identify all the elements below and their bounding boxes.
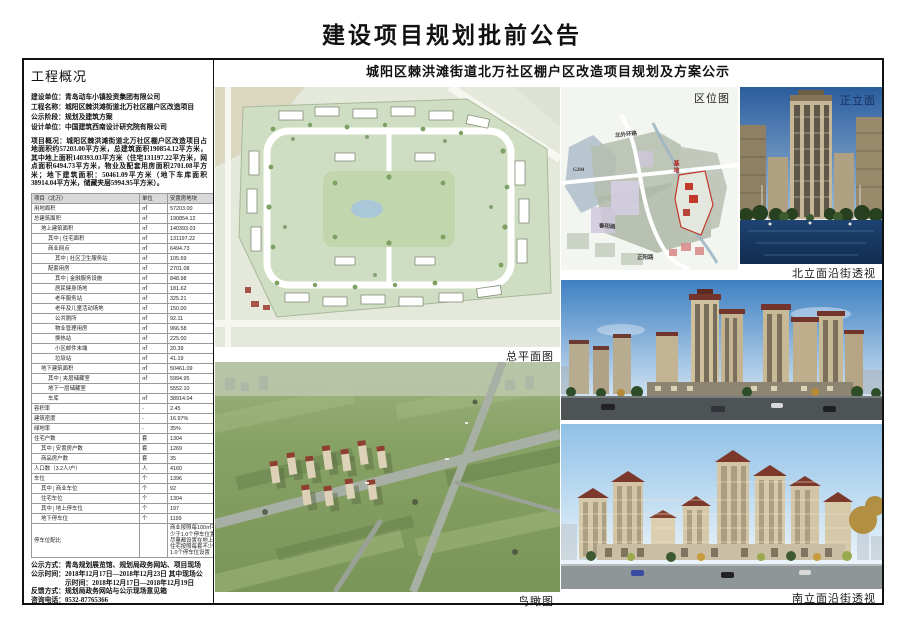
south-perspective-caption: 南立面沿街透视 [561, 590, 876, 606]
project-info-list: 建设单位：青岛动车小镇投资集团有限公司工程名称：城阳区棘洪滩街道北万社区棚户区改… [31, 93, 207, 133]
south-perspective-image [561, 424, 882, 589]
plan-subtitle: 城阳区棘洪滩街道北万社区棚户区改造项目规划及方案公示 [214, 60, 882, 86]
table-row: 配套用房㎡2701.08 [32, 264, 215, 274]
table-header-row: 项目（北万） 单位 安置房地块 [32, 194, 215, 204]
aerial-view-image [215, 362, 560, 592]
front-elevation-graphic [740, 87, 882, 264]
project-summary: 项目概况：城阳区棘洪滩街道北万社区棚户区改造项目占地面积约57203.00平方米… [31, 138, 207, 188]
table-row: 地下建筑面积㎡50461.09 [32, 364, 215, 374]
table-row: 其中金融服务设施㎡848.98 [32, 274, 215, 284]
road-label-zhengyang: 正阳路 [637, 253, 654, 261]
indicator-table: 项目（北万） 单位 安置房地块 用地面积㎡57203.00总建筑面积㎡19085… [31, 193, 214, 558]
col-header-value: 安置房地块 [168, 194, 215, 204]
project-overview-panel: 工程概况 建设单位：青岛动车小镇投资集团有限公司工程名称：城阳区棘洪滩街道北万社… [24, 60, 214, 603]
table-row: 换热站㎡225.00 [32, 334, 215, 344]
info-line: 咨询电话：0532-87765366 [31, 597, 207, 603]
table-row: 车位个1396 [32, 474, 215, 484]
table-row: 垃圾站㎡41.19 [32, 354, 215, 364]
table-row: 停车位配比商业按照每100㎡不少于1.0个停车位置，尽量都设置在地上，住宅按照每… [32, 524, 215, 558]
table-row: 居民健身场地㎡181.62 [32, 284, 215, 294]
location-map-image: 区位图 北外环路 G204 春阳路 正阳路 基地 [561, 87, 738, 270]
info-line: 公示方式：青岛规划展览馆、规划局政务网站、项目现场 [31, 562, 207, 571]
front-elevation-image: 正立面 [740, 87, 882, 264]
table-row: 商业网点㎡6494.73 [32, 244, 215, 254]
table-row: 商品房户数套35 [32, 454, 215, 464]
table-row: 地上建筑面积㎡140393.03 [32, 224, 215, 234]
table-row: 地下停车位个1199 [32, 514, 215, 524]
table-row: 小区邮件末端㎡20.39 [32, 344, 215, 354]
location-map-caption: 区位图 [694, 90, 730, 106]
info-line: 建设单位：青岛动车小镇投资集团有限公司 [31, 93, 207, 103]
table-row: 其中住宅面积㎡131197.22 [32, 234, 215, 244]
table-row: 其中社区卫生服务站㎡105.69 [32, 254, 215, 264]
table-row: 总建筑面积㎡190854.12 [32, 214, 215, 224]
road-label-g204: G204 [573, 168, 584, 173]
south-perspective-graphic [561, 424, 882, 589]
notice-board-frame: 工程概况 建设单位：青岛动车小镇投资集团有限公司工程名称：城阳区棘洪滩街道北万社… [22, 58, 884, 605]
table-row: 住宅车位个1304 [32, 494, 215, 504]
info-line: 设计单位：中国建筑西南设计研究院有限公司 [31, 123, 207, 133]
table-row: 物业管理用房㎡966.58 [32, 324, 215, 334]
front-elevation-caption: 正立面 [840, 92, 876, 108]
publicity-info-list: 公示方式：青岛规划展览馆、规划局政务网站、项目现场公示时间：2018年12月17… [31, 562, 207, 603]
table-row: 其中安置房户数套1269 [32, 444, 215, 454]
aerial-view-graphic [215, 362, 560, 592]
page-title: 建设项目规划批前公告 [0, 16, 904, 50]
north-perspective-image [561, 280, 882, 420]
table-row: 其中商业车位个92 [32, 484, 215, 494]
aerial-view-caption: 鸟瞰图 [215, 593, 554, 609]
north-perspective-graphic [561, 280, 882, 420]
panel-title: 工程概况 [31, 66, 207, 85]
site-label: 基地 [671, 160, 680, 174]
table-row: 地下一层储藏室5552.10 [32, 384, 215, 394]
table-row: 公共厕所㎡92.11 [32, 314, 215, 324]
site-plan-image [215, 87, 560, 347]
road-label-chunyang: 春阳路 [599, 221, 616, 230]
table-row: 车库㎡38914.04 [32, 394, 215, 404]
info-line: 公示阶段：规划及建筑方案 [31, 113, 207, 123]
site-plan-graphic [215, 87, 560, 347]
table-row: 其中夹层储藏室㎡5994.95 [32, 374, 215, 384]
info-line: 公示时间：2018年12月17日—2018年12月23日 其中现场公示时间：20… [31, 571, 207, 588]
table-row: 其中地上停车位个197 [32, 504, 215, 514]
table-row: 老年服务站㎡325.21 [32, 294, 215, 304]
table-row: 建筑密度-16.97% [32, 414, 215, 424]
north-perspective-caption: 北立面沿街透视 [561, 265, 876, 281]
location-map-graphic [561, 87, 738, 270]
table-row: 绿地率-35% [32, 424, 215, 434]
table-row: 老年及儿童活动场地㎡150.00 [32, 304, 215, 314]
table-row: 住宅户数套1304 [32, 434, 215, 444]
info-line: 工程名称：城阳区棘洪滩街道北万社区棚户区改造项目 [31, 103, 207, 113]
info-line: 反馈方式：规划局政务网站与公示现场意见箱 [31, 588, 207, 597]
table-row: 用地面积㎡57203.00 [32, 204, 215, 214]
table-row: 容积率-2.45 [32, 404, 215, 414]
col-header-unit: 单位 [140, 194, 168, 204]
table-row: 人口数（3.2人/户）人4160 [32, 464, 215, 474]
col-header-item: 项目（北万） [32, 194, 140, 204]
